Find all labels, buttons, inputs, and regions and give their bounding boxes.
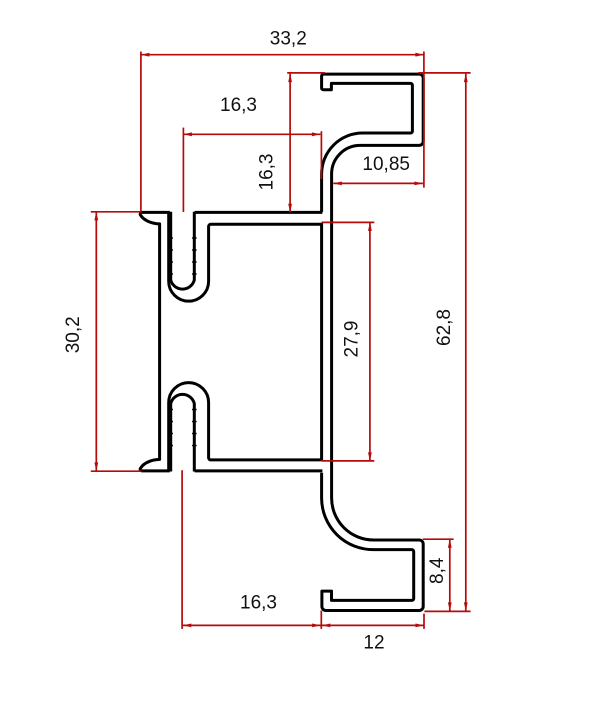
svg-text:12: 12: [363, 633, 384, 654]
svg-text:33,2: 33,2: [270, 28, 307, 49]
svg-text:30,2: 30,2: [63, 316, 84, 353]
svg-text:16,3: 16,3: [240, 593, 277, 614]
svg-text:62,8: 62,8: [434, 309, 455, 346]
svg-text:16,3: 16,3: [220, 95, 257, 116]
svg-text:27,9: 27,9: [341, 321, 362, 358]
svg-text:8,4: 8,4: [427, 557, 448, 584]
svg-text:16,3: 16,3: [257, 154, 278, 191]
svg-text:10,85: 10,85: [362, 154, 410, 175]
